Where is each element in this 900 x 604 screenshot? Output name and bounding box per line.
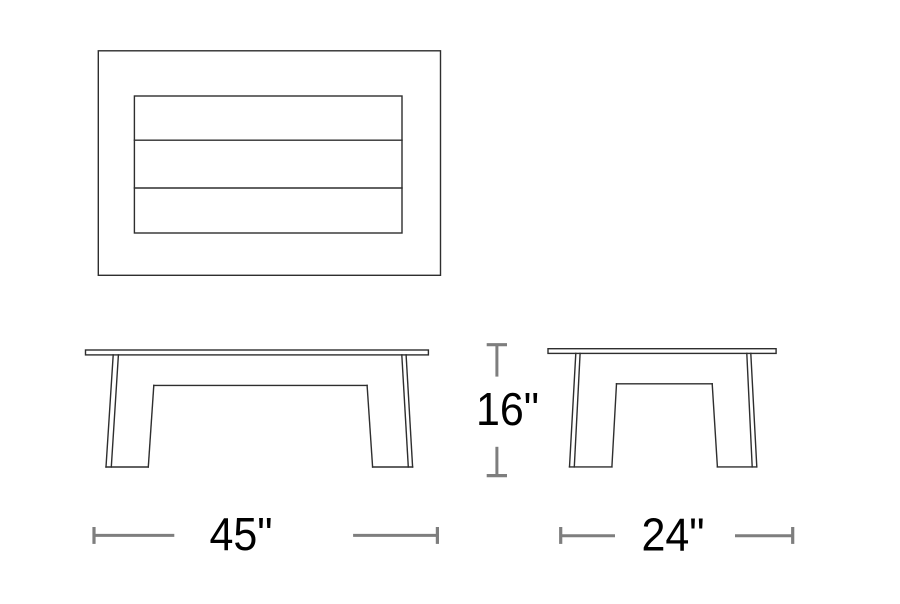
svg-text:45": 45" [209,510,272,561]
svg-text:24": 24" [641,510,704,561]
svg-text:16": 16" [476,385,539,436]
